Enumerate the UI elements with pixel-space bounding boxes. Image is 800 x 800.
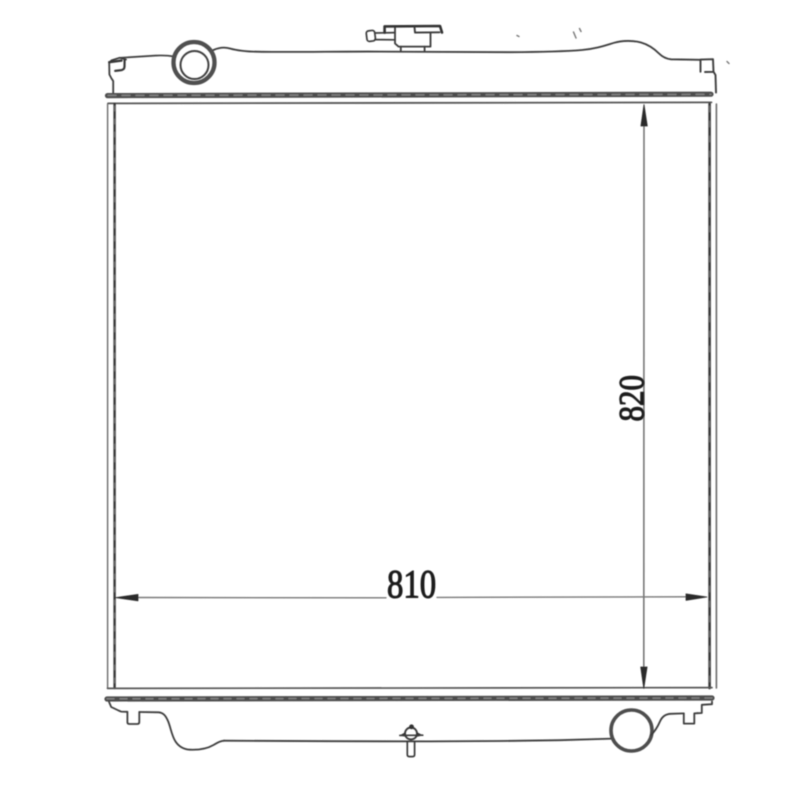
svg-text:810: 810	[387, 561, 436, 606]
svg-text:820: 820	[612, 375, 652, 421]
